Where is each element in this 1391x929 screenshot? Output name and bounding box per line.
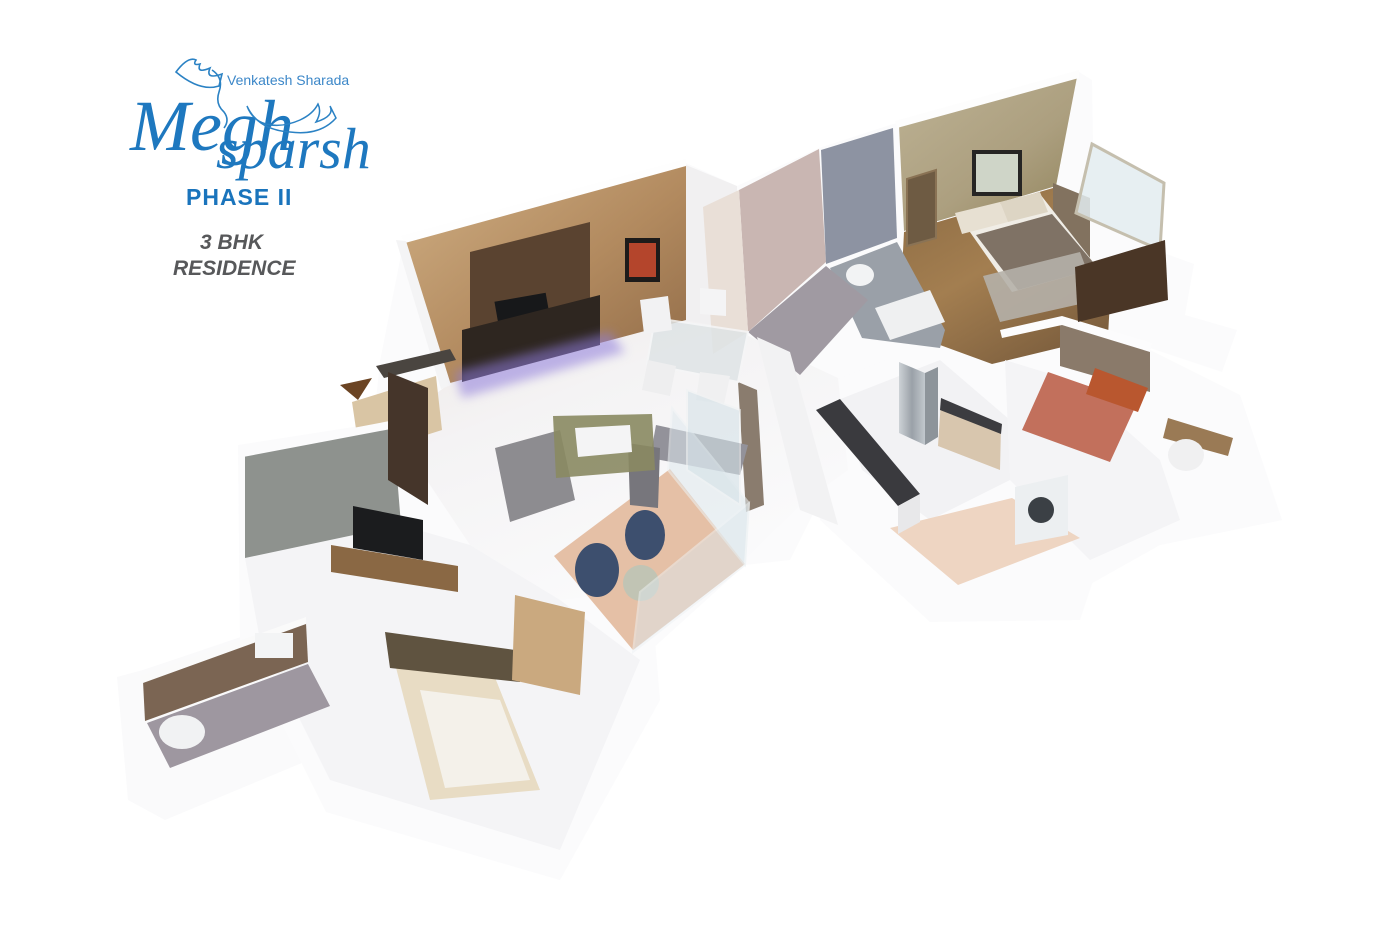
svg-text:Venkatesh Sharada: Venkatesh Sharada (227, 72, 349, 88)
svg-text:PHASE II: PHASE II (186, 184, 292, 210)
svg-text:RESIDENCE: RESIDENCE (173, 257, 297, 280)
svg-text:sparsh: sparsh (216, 116, 371, 181)
svg-text:3 BHK: 3 BHK (200, 231, 265, 254)
